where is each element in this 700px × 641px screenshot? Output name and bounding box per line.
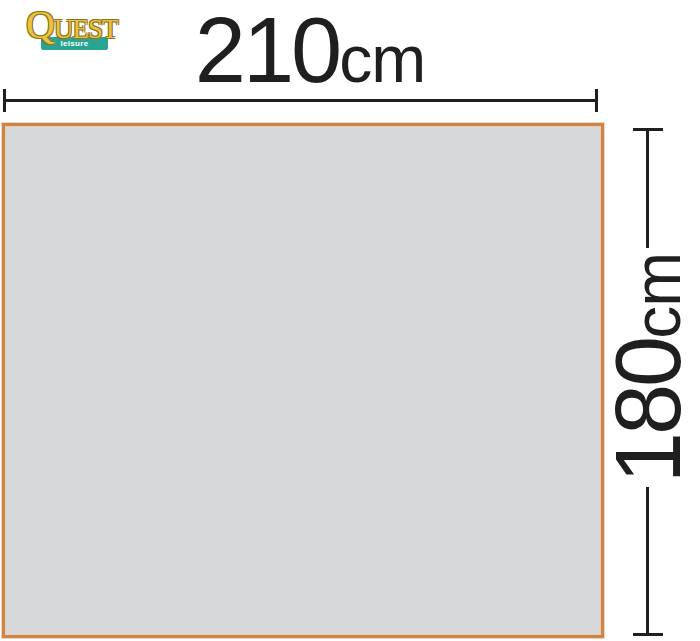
height-dimension-unit: cm <box>620 253 694 339</box>
height-dimension-label: 180cm <box>602 253 694 483</box>
width-dimension-unit: cm <box>339 22 425 96</box>
height-dim-tick-bottom <box>633 633 663 636</box>
height-dim-line-lower <box>646 487 649 634</box>
width-dim-line <box>4 99 597 102</box>
quest-logo-initial: Q <box>26 2 54 47</box>
width-dimension-value: 210 <box>195 0 340 101</box>
height-dim-line-upper <box>646 130 649 248</box>
quest-logo-wordmark: QUEST <box>26 5 136 45</box>
height-dimension-value: 180 <box>597 339 699 484</box>
width-dim-tick-right <box>595 89 598 112</box>
quest-logo-rest: UEST <box>54 14 118 44</box>
dimension-diagram: QUEST leisure products 210cm 180cm <box>0 0 700 641</box>
groundsheet-rectangle <box>2 123 604 638</box>
